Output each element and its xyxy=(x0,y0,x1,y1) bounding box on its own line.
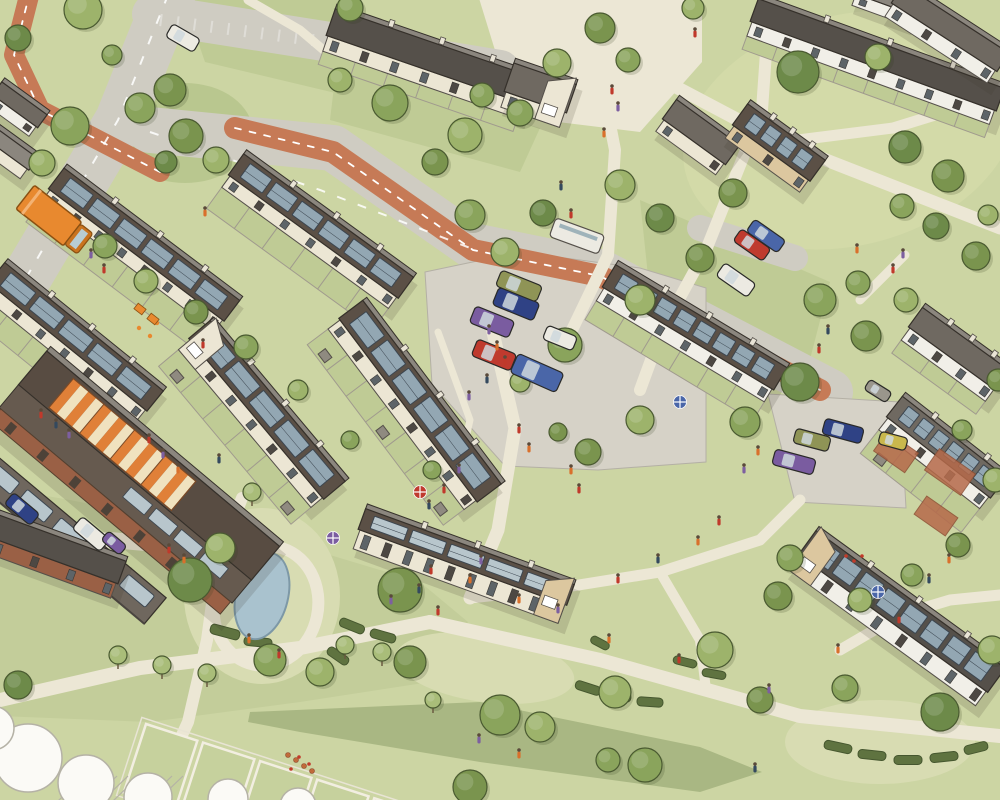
person-body xyxy=(89,252,92,259)
person-body xyxy=(277,652,280,659)
tree-highlight xyxy=(343,433,352,442)
garden-parasol xyxy=(414,486,427,499)
tree-highlight xyxy=(55,111,74,130)
tree-highlight xyxy=(903,566,914,577)
person-body xyxy=(487,328,490,335)
person-head xyxy=(39,408,43,412)
person-body xyxy=(742,467,745,474)
person xyxy=(527,442,531,452)
tree-highlight xyxy=(868,47,881,60)
person-body xyxy=(417,587,420,594)
person-head xyxy=(217,453,221,457)
tree-highlight xyxy=(95,236,107,248)
red-flowers xyxy=(860,554,864,558)
person-body xyxy=(467,394,470,401)
person-body xyxy=(527,446,530,453)
tree-highlight xyxy=(985,470,997,482)
tree-highlight xyxy=(157,77,173,93)
person-body xyxy=(247,637,250,644)
person-head xyxy=(427,499,431,503)
masterplan-illustration xyxy=(0,0,1000,800)
tree-highlight xyxy=(602,679,618,695)
person-head xyxy=(503,355,507,359)
person-body xyxy=(427,503,430,510)
person-head xyxy=(479,554,483,558)
tree-highlight xyxy=(186,302,198,314)
person-body xyxy=(559,184,562,191)
tree-highlight xyxy=(425,463,434,472)
tree-highlight xyxy=(935,163,951,179)
person-head xyxy=(556,603,560,607)
garden-parasol xyxy=(872,586,885,599)
tree-highlight xyxy=(926,216,939,229)
tree-highlight xyxy=(172,122,189,139)
person-body xyxy=(429,568,432,575)
person-body xyxy=(54,422,57,429)
person-head xyxy=(429,564,433,568)
tree-highlight xyxy=(494,241,508,255)
tree-highlight xyxy=(631,751,648,768)
person xyxy=(485,373,489,383)
person-body xyxy=(147,437,150,444)
person-body xyxy=(485,377,488,384)
plant-pot xyxy=(310,769,315,774)
person-head xyxy=(947,553,951,557)
red-flowers xyxy=(307,762,311,766)
person xyxy=(836,643,840,653)
person-head xyxy=(485,373,489,377)
tree-highlight xyxy=(948,535,960,547)
person-head xyxy=(495,340,499,344)
person xyxy=(927,573,931,583)
person xyxy=(696,535,700,545)
tree-highlight xyxy=(533,203,546,216)
person xyxy=(767,683,771,693)
tree-highlight xyxy=(451,121,468,138)
person-head xyxy=(67,428,71,432)
person-head xyxy=(826,324,830,328)
person xyxy=(677,653,681,663)
person xyxy=(897,613,901,623)
person-body xyxy=(556,607,559,614)
tree-highlight xyxy=(484,699,504,719)
person-body xyxy=(569,468,572,475)
person-body xyxy=(947,557,950,564)
tree-highlight xyxy=(172,562,194,584)
person-head xyxy=(559,180,563,184)
person xyxy=(503,355,507,365)
person-head xyxy=(389,594,393,598)
person-body xyxy=(693,31,696,38)
person-head xyxy=(577,483,581,487)
person-body xyxy=(569,212,572,219)
person-head xyxy=(602,127,606,131)
person-body xyxy=(176,467,179,474)
person-head xyxy=(467,390,471,394)
person-body xyxy=(503,359,506,366)
person-head xyxy=(610,84,614,88)
person xyxy=(417,583,421,593)
person-body xyxy=(457,467,460,474)
person-head xyxy=(756,445,760,449)
play-equipment xyxy=(137,326,141,330)
person xyxy=(67,428,71,438)
tree-highlight xyxy=(375,645,384,654)
person-head xyxy=(891,263,895,267)
tree-highlight xyxy=(7,674,21,688)
tree-highlight xyxy=(376,89,394,107)
tree-highlight xyxy=(551,425,560,434)
tree-highlight xyxy=(8,28,21,41)
person xyxy=(477,733,481,743)
tree-highlight xyxy=(896,290,908,302)
person-body xyxy=(826,328,829,335)
person-head xyxy=(527,442,531,446)
tree-highlight xyxy=(472,85,484,97)
person-head xyxy=(742,463,746,467)
person-head xyxy=(517,748,521,752)
person-head xyxy=(457,463,461,467)
person-body xyxy=(855,247,858,254)
tree-highlight xyxy=(608,173,623,188)
person-head xyxy=(569,464,573,468)
person-head xyxy=(201,338,205,342)
person xyxy=(39,408,43,418)
person xyxy=(102,263,106,273)
tree-highlight xyxy=(208,536,223,551)
tree-highlight xyxy=(456,773,473,790)
person-body xyxy=(201,342,204,349)
person xyxy=(457,463,461,473)
tree-highlight xyxy=(425,152,438,165)
tree-highlight xyxy=(257,647,273,663)
person-body xyxy=(39,412,42,419)
person-body xyxy=(468,577,471,584)
person-head xyxy=(182,553,186,557)
person xyxy=(89,248,93,258)
person xyxy=(901,248,905,258)
tree-highlight xyxy=(925,697,944,716)
tree-highlight xyxy=(588,16,603,31)
person xyxy=(389,594,393,604)
red-flowers xyxy=(297,755,301,759)
person-head xyxy=(54,418,58,422)
tree-highlight xyxy=(32,153,45,166)
person-head xyxy=(436,605,440,609)
person xyxy=(947,553,951,563)
tree-highlight xyxy=(989,371,1000,382)
garden-parasol xyxy=(327,532,340,545)
aerial-neighbourhood-scene xyxy=(0,0,1000,800)
tree-highlight xyxy=(785,367,804,386)
tree-highlight xyxy=(701,636,719,654)
person-body xyxy=(610,88,613,95)
tree-highlight xyxy=(649,207,663,221)
tree-highlight xyxy=(546,52,560,66)
person-body xyxy=(767,687,770,694)
person xyxy=(54,418,58,428)
tree-highlight xyxy=(104,47,114,57)
person-body xyxy=(901,252,904,259)
person-body xyxy=(477,737,480,744)
person-head xyxy=(817,343,821,347)
tree-highlight xyxy=(807,287,823,303)
person xyxy=(167,543,171,553)
person xyxy=(610,84,614,94)
person-body xyxy=(479,558,482,565)
tree-highlight xyxy=(598,750,610,762)
person-body xyxy=(616,577,619,584)
tree-highlight xyxy=(111,648,120,657)
person xyxy=(176,463,180,473)
tree-highlight xyxy=(965,245,979,259)
person-head xyxy=(468,573,472,577)
person-body xyxy=(753,766,756,773)
tree-highlight xyxy=(733,410,748,425)
tree-highlight xyxy=(689,247,703,261)
person-head xyxy=(897,613,901,617)
person xyxy=(756,445,760,455)
tree-highlight xyxy=(290,382,300,392)
person-head xyxy=(696,535,700,539)
tree-highlight xyxy=(629,409,643,423)
red-flowers xyxy=(852,559,856,563)
tree-highlight xyxy=(780,548,793,561)
person-head xyxy=(767,683,771,687)
person xyxy=(442,483,446,493)
red-flowers xyxy=(844,554,848,558)
person xyxy=(656,553,660,563)
person-head xyxy=(167,543,171,547)
tree-highlight xyxy=(330,70,342,82)
person xyxy=(742,463,746,473)
person-body xyxy=(677,657,680,664)
person-body xyxy=(203,210,206,217)
person xyxy=(217,453,221,463)
person-head xyxy=(616,573,620,577)
person xyxy=(891,263,895,273)
person-body xyxy=(607,637,610,644)
person-head xyxy=(477,733,481,737)
person-head xyxy=(693,27,697,31)
person-body xyxy=(836,647,839,654)
person-head xyxy=(677,653,681,657)
tree-highlight xyxy=(236,337,248,349)
person xyxy=(429,564,433,574)
person xyxy=(436,605,440,615)
person-head xyxy=(517,423,521,427)
person-body xyxy=(756,449,759,456)
person-head xyxy=(607,633,611,637)
tree-highlight xyxy=(722,182,736,196)
tree-highlight xyxy=(157,153,168,164)
person-body xyxy=(927,577,930,584)
tree-highlight xyxy=(980,207,990,217)
person-head xyxy=(656,553,660,557)
tree-highlight xyxy=(854,324,869,339)
person xyxy=(855,243,859,253)
person-head xyxy=(247,633,251,637)
plant-pot xyxy=(286,753,291,758)
person xyxy=(693,27,697,37)
person xyxy=(201,338,205,348)
person xyxy=(602,127,606,137)
person-body xyxy=(616,105,619,112)
hedge-block xyxy=(637,697,664,708)
person-body xyxy=(717,519,720,526)
tree-highlight xyxy=(528,715,543,730)
person xyxy=(577,483,581,493)
person xyxy=(495,340,499,350)
person-body xyxy=(517,752,520,759)
tree-highlight xyxy=(954,422,964,432)
person-head xyxy=(102,263,106,267)
person xyxy=(203,206,207,216)
person-body xyxy=(442,487,445,494)
person-body xyxy=(577,487,580,494)
person-head xyxy=(417,583,421,587)
tree-highlight xyxy=(892,196,904,208)
person xyxy=(817,343,821,353)
person xyxy=(517,748,521,758)
person-head xyxy=(203,206,207,210)
garden-parasol xyxy=(674,396,687,409)
tree-highlight xyxy=(750,690,763,703)
tree-highlight xyxy=(578,442,591,455)
person-head xyxy=(753,762,757,766)
person xyxy=(277,648,281,658)
person xyxy=(467,390,471,400)
person xyxy=(427,499,431,509)
tree-highlight xyxy=(850,590,862,602)
person-body xyxy=(696,539,699,546)
red-flowers xyxy=(289,767,293,771)
person xyxy=(468,573,472,583)
tree-highlight xyxy=(128,96,143,111)
person xyxy=(826,324,830,334)
person-body xyxy=(656,557,659,564)
person-body xyxy=(182,557,185,564)
person xyxy=(147,433,151,443)
person-head xyxy=(89,248,93,252)
hedge-block xyxy=(894,756,922,765)
tree-highlight xyxy=(397,649,413,665)
person xyxy=(559,180,563,190)
person-head xyxy=(855,243,859,247)
person-head xyxy=(487,324,491,328)
tree-highlight xyxy=(510,103,523,116)
tree-highlight xyxy=(458,203,473,218)
tree-highlight xyxy=(136,271,148,283)
person-head xyxy=(569,208,573,212)
person-body xyxy=(217,457,220,464)
person-head xyxy=(836,643,840,647)
person xyxy=(569,464,573,474)
person xyxy=(753,762,757,772)
person-head xyxy=(161,448,165,452)
tree-highlight xyxy=(245,485,254,494)
person xyxy=(487,324,491,334)
person xyxy=(616,101,620,111)
person-body xyxy=(517,597,520,604)
person xyxy=(616,573,620,583)
person-body xyxy=(436,609,439,616)
person-body xyxy=(517,427,520,434)
person-body xyxy=(495,344,498,351)
person-head xyxy=(147,433,151,437)
tree-highlight xyxy=(848,273,860,285)
tree-highlight xyxy=(781,55,802,76)
tree-highlight xyxy=(427,694,435,702)
tree-highlight xyxy=(206,150,219,163)
person-head xyxy=(717,515,721,519)
tree-highlight xyxy=(767,585,781,599)
person-body xyxy=(897,617,900,624)
person-head xyxy=(901,248,905,252)
person xyxy=(479,554,483,564)
person xyxy=(161,448,165,458)
person-body xyxy=(167,547,170,554)
person xyxy=(182,553,186,563)
person-head xyxy=(517,593,521,597)
tree-highlight xyxy=(338,638,347,647)
tree-highlight xyxy=(835,678,848,691)
tree-highlight xyxy=(892,134,908,150)
person-body xyxy=(161,452,164,459)
person-body xyxy=(389,598,392,605)
tree-highlight xyxy=(155,658,164,667)
play-equipment xyxy=(148,334,152,338)
person-head xyxy=(616,101,620,105)
tree-highlight xyxy=(628,288,643,303)
person xyxy=(556,603,560,613)
person-head xyxy=(442,483,446,487)
person xyxy=(717,515,721,525)
tree-highlight xyxy=(309,661,323,675)
person-body xyxy=(817,347,820,354)
person xyxy=(247,633,251,643)
person-head xyxy=(927,573,931,577)
person-body xyxy=(102,267,105,274)
person xyxy=(517,593,521,603)
person-body xyxy=(67,432,70,439)
tree-highlight xyxy=(200,666,209,675)
person xyxy=(517,423,521,433)
person-head xyxy=(277,648,281,652)
person-body xyxy=(891,267,894,274)
tree-highlight xyxy=(981,639,995,653)
person-head xyxy=(176,463,180,467)
plant-pot xyxy=(302,764,307,769)
person-body xyxy=(602,131,605,138)
person xyxy=(607,633,611,643)
person xyxy=(569,208,573,218)
tree-highlight xyxy=(382,572,404,594)
tree-highlight xyxy=(618,50,630,62)
